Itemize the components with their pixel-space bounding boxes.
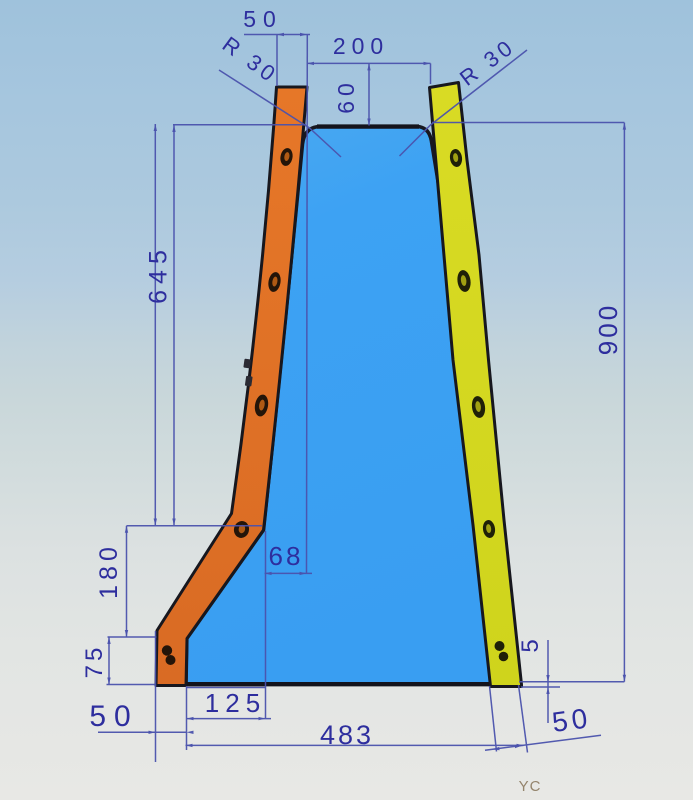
svg-text:5: 5 xyxy=(517,639,544,652)
svg-text:645: 645 xyxy=(145,244,173,304)
svg-text:60: 60 xyxy=(333,78,359,114)
svg-text:180: 180 xyxy=(95,542,123,599)
svg-text:50: 50 xyxy=(243,6,283,32)
svg-text:75: 75 xyxy=(81,644,108,679)
svg-text:900: 900 xyxy=(593,303,623,355)
svg-text:200: 200 xyxy=(333,33,389,59)
svg-text:125: 125 xyxy=(205,688,266,718)
svg-text:YC: YC xyxy=(519,778,542,795)
svg-text:50: 50 xyxy=(89,700,138,733)
svg-text:50: 50 xyxy=(550,702,593,738)
svg-text:68: 68 xyxy=(269,541,304,571)
svg-text:483: 483 xyxy=(320,720,374,750)
